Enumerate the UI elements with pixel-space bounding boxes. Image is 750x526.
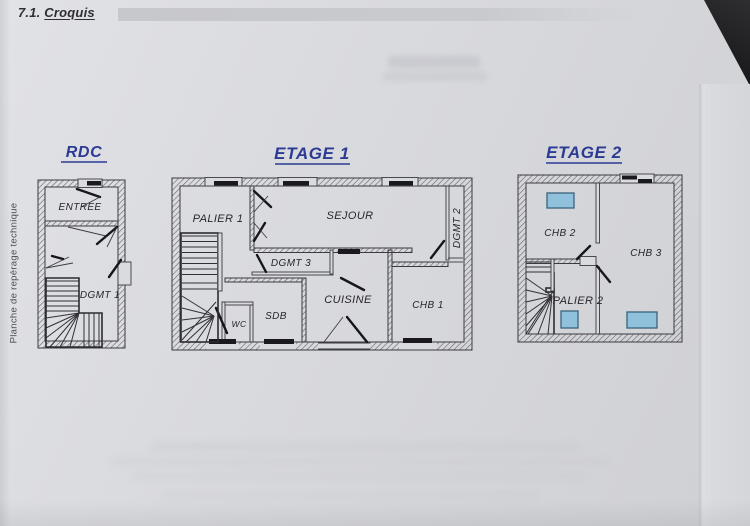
room-label-dgmt3: DGMT 3 <box>271 258 311 269</box>
etage1-window-sash <box>214 181 238 186</box>
etage2-top-window-sash <box>622 176 637 180</box>
room-label-palier1: PALIER 1 <box>193 213 244 225</box>
dgmt3-right-wall <box>330 250 333 274</box>
etage1-title: ETAGE 1 <box>274 144 350 163</box>
etage1-window-sash <box>283 181 309 186</box>
room-label-chb2: CHB 2 <box>544 228 575 239</box>
palier2-threshold <box>580 257 596 266</box>
room-label-dgmt2: DGMT 2 <box>452 208 463 248</box>
etage2-staircase <box>526 262 554 334</box>
etage1-bottom-window-sash <box>403 338 432 343</box>
chb3-velux-window <box>627 312 657 328</box>
rdc-plan: RDC ENTREE DGMT 1 <box>38 144 131 348</box>
rdc-door-swing <box>68 227 106 236</box>
dgmt3-cuisine-door-leaf <box>341 278 364 290</box>
dgmt3-bottom-wall <box>252 272 333 275</box>
rdc-door-leaf <box>97 227 117 244</box>
dgmt2-door-leaf <box>431 241 444 258</box>
chb2-chb3-wall <box>596 183 600 243</box>
etage1-bottom-window-sash <box>264 339 294 344</box>
stair-side-wall <box>218 233 222 291</box>
dgmt3-door-leaf <box>257 255 266 272</box>
cuisine-door-right-leaf <box>347 317 367 342</box>
sdb-cuisine-wall <box>302 278 306 342</box>
document-photo: 7.1. Croquis Planche de repérage techniq… <box>0 0 750 526</box>
rdc-top-window-sash <box>87 181 101 186</box>
rdc-door-swing <box>46 263 73 268</box>
chb2-velux-window <box>547 193 574 208</box>
room-label-dgmt1: DGMT 1 <box>80 290 120 301</box>
etage2-title: ETAGE 2 <box>546 143 622 162</box>
stair-palier2-wall <box>551 259 554 291</box>
floor-plans-drawing: RDC ENTREE DGMT 1 <box>0 0 750 526</box>
sdb-top-wall <box>225 278 302 282</box>
room-label-wc: WC <box>232 319 247 329</box>
palier-door-leaf <box>254 191 271 207</box>
chb1-top-wall <box>392 262 448 267</box>
rdc-title: RDC <box>66 144 102 161</box>
cuisine-door-opening <box>318 343 370 350</box>
dgmt2-left-wall <box>446 186 449 260</box>
cuisine-door-left-leaf <box>324 317 343 342</box>
wc-right-wall <box>250 305 253 342</box>
etage1-bottom-window <box>399 343 437 350</box>
etage2-plan: ETAGE 2 <box>518 143 682 342</box>
rdc-staircase <box>46 278 102 347</box>
room-label-palier2: PALIER 2 <box>553 295 604 307</box>
etage1-window-sash <box>389 181 413 186</box>
rdc-partition-wall <box>45 221 118 226</box>
rdc-right-window <box>118 262 131 285</box>
room-label-entree: ENTREE <box>59 202 102 213</box>
cuisine-chb1-wall <box>388 250 392 342</box>
page-right-edge <box>699 84 750 526</box>
etage2-top-window-sash <box>638 179 652 183</box>
sejour-wall-opening-bar <box>338 249 360 254</box>
entree-door-leaf <box>77 189 100 197</box>
room-label-sejour: SEJOUR <box>326 210 373 222</box>
palier2-velux-window <box>561 311 578 328</box>
rdc-door-leaf <box>52 256 63 259</box>
room-label-sdb: SDB <box>265 311 287 322</box>
room-label-cuisine: CUISINE <box>324 294 372 306</box>
palier-door-leaf <box>254 223 265 241</box>
etage1-plan: ETAGE 1 DGMT 3 <box>172 144 472 350</box>
room-label-chb3: CHB 3 <box>630 248 661 259</box>
wc-top-wall <box>222 302 253 305</box>
etage1-staircase <box>181 233 218 342</box>
room-label-chb1: CHB 1 <box>412 300 443 311</box>
